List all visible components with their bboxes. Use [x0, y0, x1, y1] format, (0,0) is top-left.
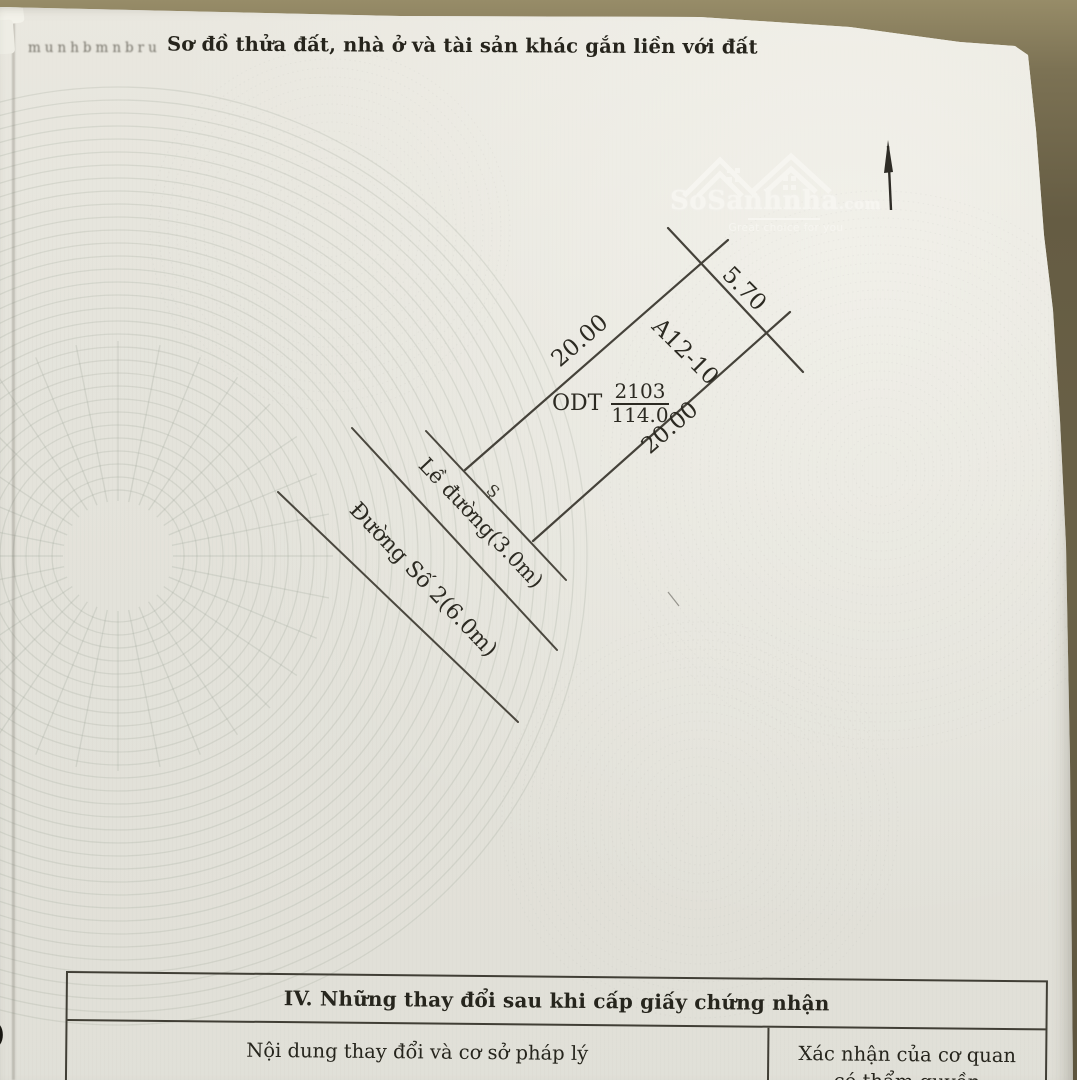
changes-after-issuance-table: IV. Những thay đổi sau khi cấp giấy chứn…	[65, 971, 1048, 1080]
land-use-code: ODT	[552, 391, 602, 416]
parcel-info-block: ODT 2103 114.0	[552, 381, 669, 426]
paper-slip-bottom	[0, 19, 15, 54]
authority-line-1: Xác nhận của cơ quan	[769, 1040, 1045, 1070]
north-arrow-icon	[884, 140, 893, 210]
column-header-change-content: Nội dung thay đổi và cơ sở pháp lý	[67, 1021, 770, 1080]
page-edge-mark: )	[0, 1014, 6, 1054]
certificate-paper: munhbmnbru Sơ đồ thửa đất, nhà ở và tài …	[0, 0, 1077, 1080]
paper-scratch	[668, 592, 679, 606]
column-header-authority: Xác nhận của cơ quan có thẩm quyền	[769, 1028, 1046, 1080]
parcel-diagram	[0, 0, 1077, 1080]
parcel-number: 2103	[611, 381, 668, 405]
photographed-land-certificate-page: munhbmnbru Sơ đồ thửa đất, nhà ở và tài …	[0, 0, 1077, 1080]
